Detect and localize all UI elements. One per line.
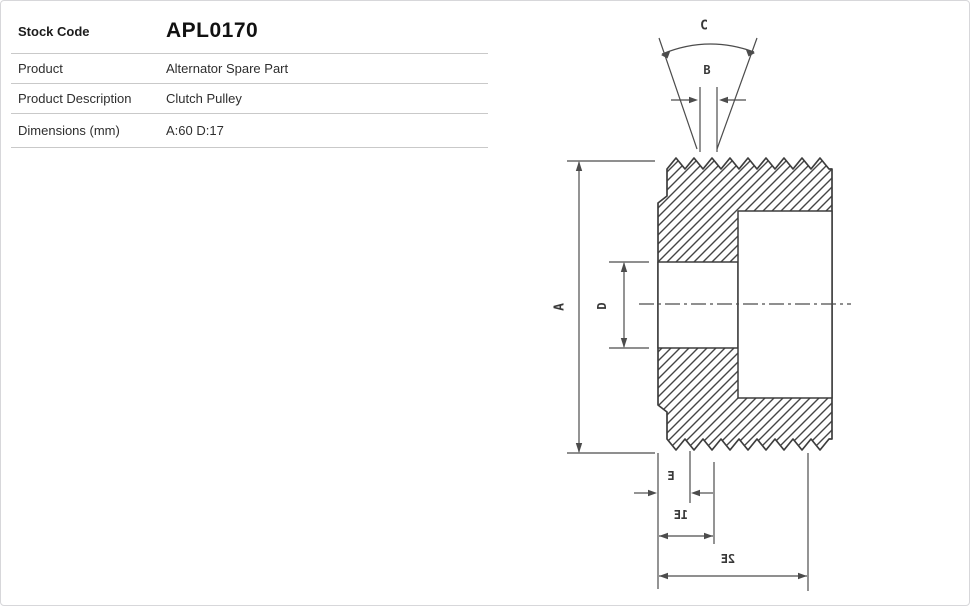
- table-row: Product Alternator Spare Part: [11, 54, 488, 84]
- table-row: Dimensions (mm) A:60 D:17: [11, 114, 488, 148]
- shaft-bore: [658, 262, 738, 348]
- product-label: Product: [18, 61, 166, 76]
- product-value: Alternator Spare Part: [166, 61, 288, 76]
- dimensions-label: Dimensions (mm): [18, 123, 166, 138]
- dim-label-d: D: [595, 302, 609, 309]
- product-description-label: Product Description: [18, 91, 166, 106]
- table-row: Product Description Clutch Pulley: [11, 84, 488, 114]
- pulley-outline: [658, 158, 832, 450]
- dimension-arrowheads: [576, 49, 807, 580]
- dimension-lines: [567, 38, 808, 591]
- dim-label-a: A: [553, 303, 568, 311]
- product-card: Stock Code APL0170 Product Alternator Sp…: [0, 0, 970, 606]
- dim-label-e1: E1: [674, 508, 688, 522]
- stock-code-label: Stock Code: [18, 24, 166, 39]
- clutch-cavity: [738, 211, 832, 398]
- stock-code-value: APL0170: [166, 19, 258, 43]
- table-row: Stock Code APL0170: [11, 9, 488, 54]
- dim-label-e: E: [667, 469, 674, 483]
- product-info-table: Stock Code APL0170 Product Alternator Sp…: [11, 9, 488, 148]
- dimensions-value: A:60 D:17: [166, 123, 224, 138]
- dim-label-e2: E2: [721, 552, 735, 566]
- pulley-cross-section: [658, 158, 832, 450]
- dim-label-b: B: [703, 63, 710, 77]
- product-description-value: Clutch Pulley: [166, 91, 242, 106]
- dim-label-c: C: [700, 19, 708, 34]
